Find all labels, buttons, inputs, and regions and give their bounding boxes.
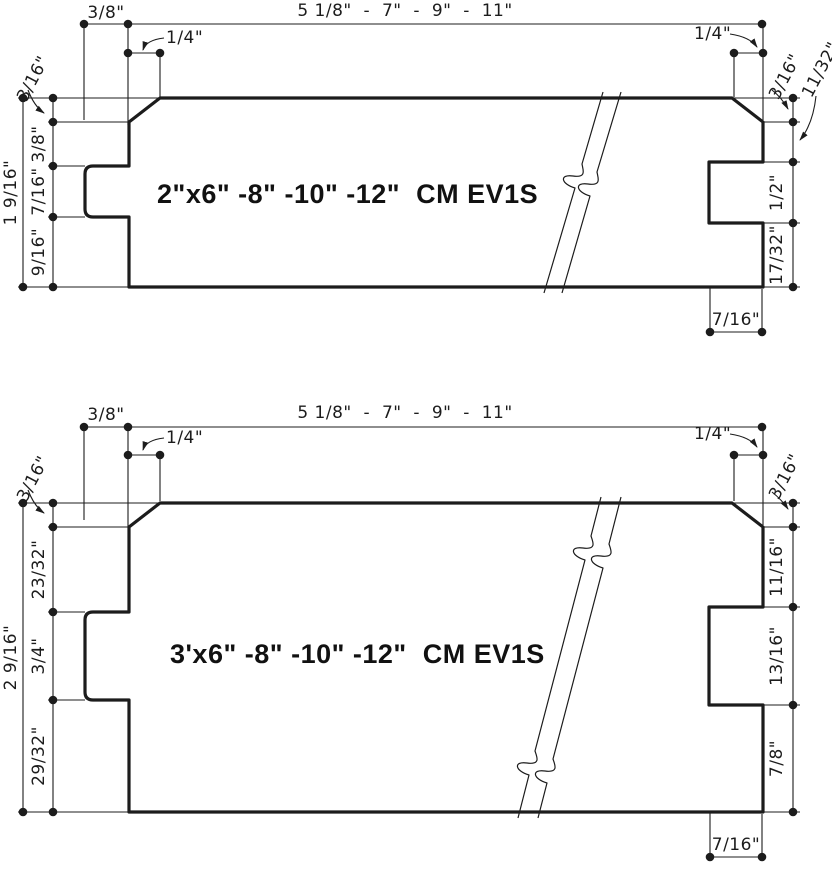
dim-chamfer-left-1: 1/4" — [166, 29, 203, 48]
dim-groove-depth-1: 7/16" — [706, 311, 766, 330]
dim-seg-left-1-2: 23/32" — [30, 527, 49, 612]
leader-chamfer-left — [143, 438, 164, 450]
dim-overall-thickness-2: 2 9/16" — [2, 503, 21, 812]
dim-widths-series-2: 5 1/8" - 7" - 9" - 11" — [250, 404, 560, 423]
dim-seg-right-2-2: 13/16" — [768, 607, 787, 705]
dim-seg-right-1-2: 11/16" — [768, 527, 787, 607]
dim-seg-left-2-2: 3/4" — [30, 612, 49, 700]
dim-seg-right-3-2: 7/8" — [768, 705, 787, 812]
dim-chamfer-left-2: 1/4" — [166, 429, 203, 448]
dim-tongue-setback-2: 3/8" — [82, 406, 130, 425]
leader-chamfer-right — [730, 434, 757, 447]
dim-seg-left-3-2: 29/32" — [30, 700, 49, 812]
dim-groove-depth-2: 7/16" — [706, 836, 766, 855]
leader-chamfer-right — [730, 34, 757, 47]
drawing-title-1: 2"x6" -8" -10" -12" CM EV1S — [157, 179, 538, 210]
dim-chamfer-right-1: 1/4" — [694, 25, 731, 44]
dim-chamfer-right-2: 1/4" — [694, 425, 731, 444]
leader-chamfer-left — [143, 38, 164, 50]
dim-seg-left-3-1: 9/16" — [30, 217, 49, 287]
dim-seg-right-3-1: 17/32" — [768, 223, 787, 287]
dim-seg-right-2-1: 1/2" — [768, 162, 787, 223]
dim-widths-series-1: 5 1/8" - 7" - 9" - 11" — [250, 2, 560, 21]
dim-tongue-setback-1: 3/8" — [82, 4, 130, 23]
dim-seg-left-2-1: 7/16" — [30, 166, 49, 217]
drawing-sheet: 3/8" 5 1/8" - 7" - 9" - 11" 1/4" 1/4" 1 … — [0, 0, 832, 872]
dim-overall-thickness-1: 1 9/16" — [2, 98, 21, 287]
drawing-title-2: 3'x6" -8" -10" -12" CM EV1S — [170, 639, 545, 670]
leader-seg-right-1 — [800, 96, 816, 140]
dim-seg-left-1-1: 3/8" — [30, 122, 49, 166]
